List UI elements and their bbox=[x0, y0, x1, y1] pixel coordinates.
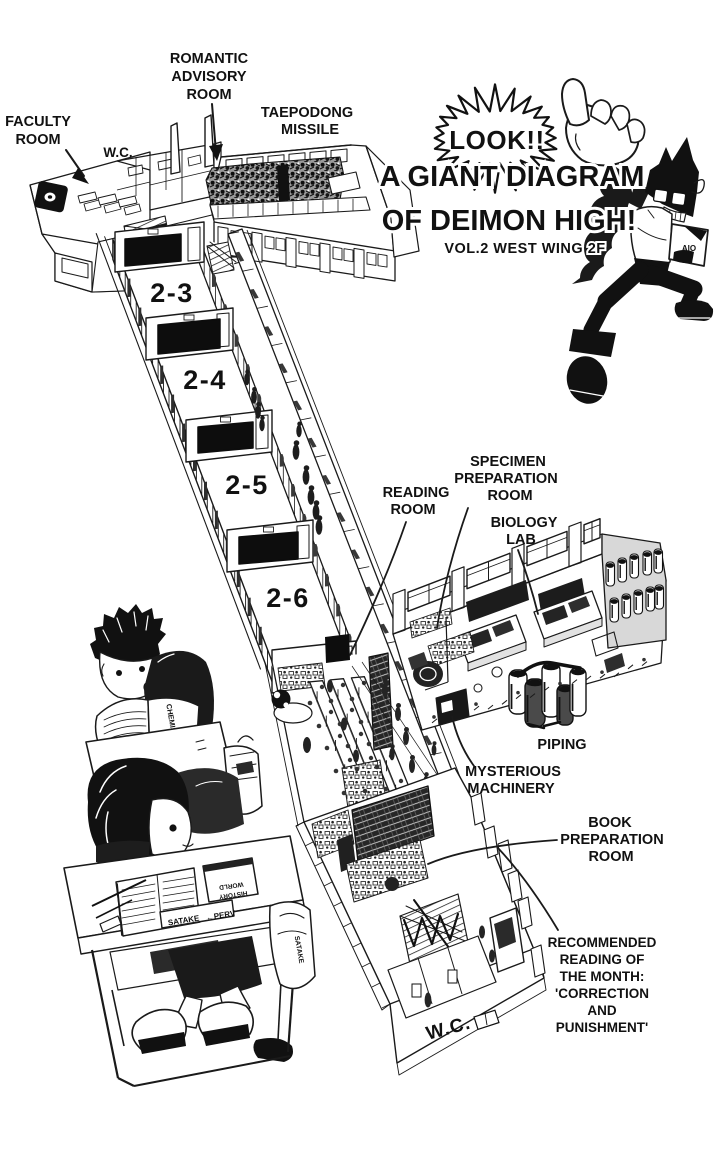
svg-text:TAEPODONG: TAEPODONG bbox=[261, 105, 353, 121]
svg-text:READING OF: READING OF bbox=[560, 952, 645, 967]
svg-text:SPECIMEN: SPECIMEN bbox=[470, 454, 546, 470]
svg-text:ROOM: ROOM bbox=[487, 488, 532, 504]
svg-text:MYSTERIOUS: MYSTERIOUS bbox=[465, 764, 561, 780]
svg-text:LAB: LAB bbox=[506, 532, 536, 548]
svg-text:VOL.2 WEST WING 2F: VOL.2 WEST WING 2F bbox=[444, 241, 605, 257]
svg-text:ROOM: ROOM bbox=[186, 87, 231, 103]
svg-text:LOOK!!: LOOK!! bbox=[449, 125, 544, 155]
svg-text:PUNISHMENT': PUNISHMENT' bbox=[556, 1020, 648, 1035]
svg-text:READING: READING bbox=[383, 485, 450, 501]
svg-text:ROOM: ROOM bbox=[15, 132, 60, 148]
svg-text:'CORRECTION: 'CORRECTION bbox=[555, 986, 649, 1001]
svg-text:ROOM: ROOM bbox=[588, 849, 633, 865]
svg-text:AND: AND bbox=[587, 1003, 616, 1018]
svg-text:RECOMMENDED: RECOMMENDED bbox=[548, 935, 657, 950]
svg-text:BIOLOGY: BIOLOGY bbox=[491, 515, 558, 531]
svg-text:BOOK: BOOK bbox=[588, 815, 632, 831]
svg-text:THE MONTH:: THE MONTH: bbox=[560, 969, 645, 984]
svg-text:2-4: 2-4 bbox=[183, 365, 227, 395]
svg-text:MISSILE: MISSILE bbox=[281, 122, 339, 138]
svg-text:PREPARATION: PREPARATION bbox=[454, 471, 557, 487]
svg-text:OF DEIMON HIGH!: OF DEIMON HIGH! bbox=[382, 205, 637, 237]
svg-text:PIPING: PIPING bbox=[537, 737, 586, 753]
svg-text:MACHINERY: MACHINERY bbox=[467, 781, 555, 797]
svg-text:FACULTY: FACULTY bbox=[5, 114, 71, 130]
svg-text:ADVISORY: ADVISORY bbox=[171, 69, 247, 85]
svg-text:2-3: 2-3 bbox=[150, 278, 194, 308]
svg-text:ROMANTIC: ROMANTIC bbox=[170, 51, 249, 67]
svg-text:2-6: 2-6 bbox=[266, 583, 310, 613]
svg-text:W.C.: W.C. bbox=[103, 145, 132, 160]
svg-text:ROOM: ROOM bbox=[390, 502, 435, 518]
svg-text:A GIANT DIAGRAM: A GIANT DIAGRAM bbox=[380, 161, 645, 193]
svg-text:PREPARATION: PREPARATION bbox=[560, 832, 663, 848]
svg-text:2-5: 2-5 bbox=[225, 470, 269, 500]
